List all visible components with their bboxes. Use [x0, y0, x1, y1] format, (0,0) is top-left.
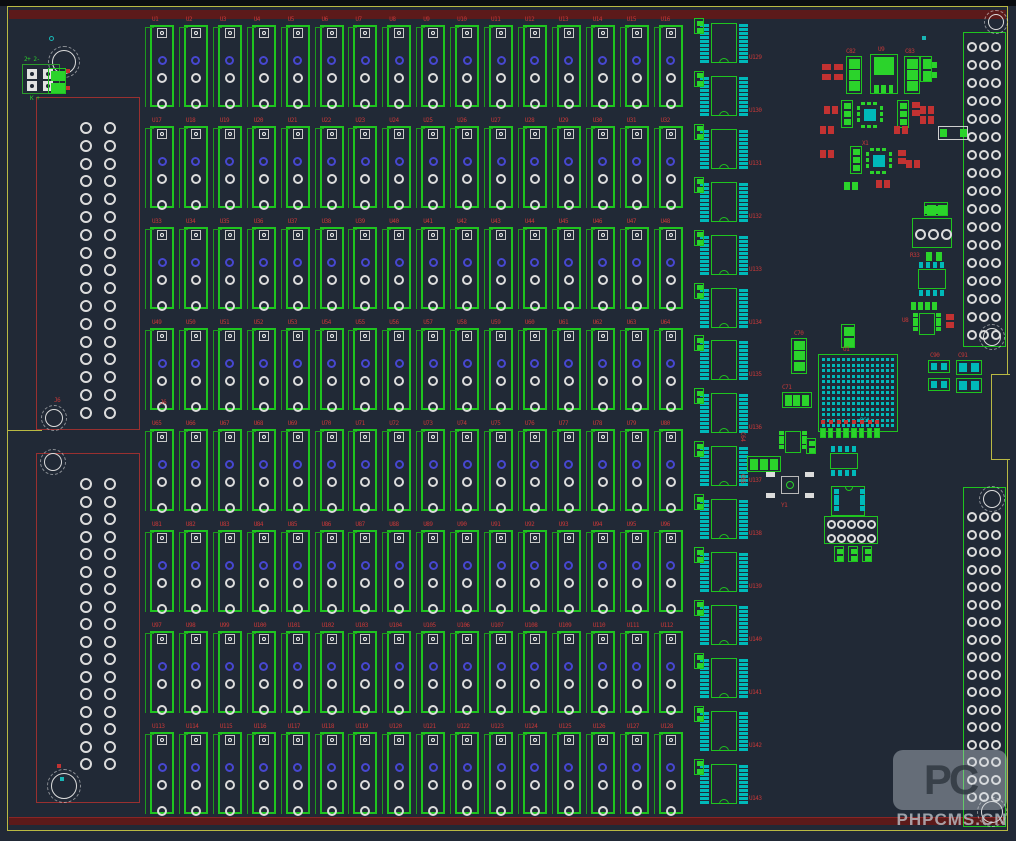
- relay-outline-2: [450, 330, 459, 410]
- pad-pin1: [191, 331, 201, 341]
- watermark: PC PHPCMS.CN: [891, 748, 1013, 836]
- relay-outline-2: [552, 532, 561, 612]
- ball-pad: [832, 386, 835, 389]
- relay-designator: U99: [220, 623, 229, 629]
- relay-designator: U94: [593, 522, 602, 528]
- dip8-socket[interactable]: [831, 486, 865, 516]
- capacitor-smd[interactable]: [956, 378, 982, 393]
- bypass-capacitor[interactable]: [694, 18, 704, 34]
- pad-hole: [397, 435, 401, 439]
- body: [918, 269, 946, 289]
- bypass-capacitor[interactable]: [694, 283, 704, 299]
- pin-pad: [913, 327, 918, 331]
- pad: [327, 376, 337, 386]
- ic-pin-pad: [700, 40, 709, 43]
- ic-pin-pad: [700, 317, 709, 320]
- ic-footprint[interactable]: [711, 129, 737, 169]
- ic-pin-pad: [739, 785, 748, 788]
- connector-pad: [991, 114, 1001, 124]
- connector-pad: [979, 150, 989, 160]
- ic-pin-pad: [739, 85, 748, 88]
- pad-pin1: [259, 533, 269, 543]
- ic-pin-pad: [739, 199, 748, 202]
- ic-pin-pad: [739, 626, 748, 629]
- capacitor-smd[interactable]: [925, 302, 937, 310]
- bypass-capacitor[interactable]: [694, 177, 704, 193]
- ball-pad: [857, 358, 860, 361]
- ic-pin-pad: [739, 679, 748, 682]
- capacitor-smd[interactable]: [48, 68, 66, 94]
- relay-outline-2: [315, 128, 324, 208]
- cap-pad: [697, 557, 703, 562]
- pad-signal: [598, 763, 607, 772]
- ic-pin-pad: [700, 622, 709, 625]
- pad-pin1: [191, 432, 201, 442]
- pad: [914, 160, 920, 168]
- pad-signal: [225, 763, 234, 772]
- ic-footprint[interactable]: [711, 605, 737, 645]
- capacitor-polarized[interactable]: [846, 56, 862, 94]
- relay-designator: U42: [457, 219, 466, 225]
- pad: [822, 64, 831, 70]
- cap-segment: [793, 395, 800, 406]
- pad-signal: [429, 56, 438, 65]
- relay-designator: U100: [254, 623, 266, 629]
- pad: [632, 402, 642, 412]
- resistor-smd[interactable]: [822, 64, 831, 80]
- capacitor-smd[interactable]: [920, 56, 932, 82]
- relay-designator: U118: [322, 724, 334, 730]
- relay-outline-2: [586, 27, 595, 107]
- bypass-capacitor[interactable]: [694, 494, 704, 510]
- ic-pin-pad: [700, 532, 709, 535]
- capacitor-polarized[interactable]: [850, 146, 862, 174]
- pad: [259, 402, 269, 412]
- capacitor-smd[interactable]: [806, 438, 816, 454]
- capacitor-polarized[interactable]: [841, 100, 853, 128]
- relay-outline-2: [552, 633, 561, 713]
- relay-designator: U11: [491, 17, 500, 23]
- ball-pad: [822, 391, 825, 394]
- ball-pad: [827, 386, 830, 389]
- pad: [496, 806, 506, 816]
- terminal-block[interactable]: [912, 218, 952, 248]
- pad-signal: [361, 662, 370, 671]
- pad-hole: [499, 31, 503, 35]
- pad: [598, 806, 608, 816]
- pad-pin1: [496, 735, 506, 745]
- fuse-component[interactable]: [938, 126, 968, 140]
- soic8-chip[interactable]: [779, 430, 807, 454]
- relay-designator: U44: [525, 219, 534, 225]
- ic-pin-pad: [739, 659, 748, 662]
- bypass-capacitor[interactable]: [694, 759, 704, 775]
- ball-pad: [842, 386, 845, 389]
- ball-pad: [837, 375, 840, 378]
- pad-pin1: [327, 331, 337, 341]
- ball-pad: [837, 369, 840, 372]
- pad: [157, 376, 167, 386]
- ic-pin-pad: [739, 687, 748, 690]
- ic-pin-pad: [700, 113, 709, 116]
- pad-pin1: [598, 533, 608, 543]
- ball-pad: [861, 402, 864, 405]
- cap-segment: [853, 157, 860, 164]
- resistor-smd[interactable]: [820, 150, 834, 158]
- ball-pad: [886, 369, 889, 372]
- pad: [971, 363, 979, 372]
- resistor-smd[interactable]: [920, 116, 934, 124]
- pad-signal: [395, 258, 404, 267]
- connector-pad: [104, 158, 116, 170]
- ic-pin-pad: [739, 553, 748, 556]
- relay-designator: U1: [152, 17, 158, 23]
- capacitor-smd[interactable]: [841, 324, 855, 348]
- pad-signal: [666, 359, 675, 368]
- ic-footprint[interactable]: [711, 499, 737, 539]
- pad-signal: [463, 561, 472, 570]
- ball-pad: [857, 375, 860, 378]
- notch: [845, 487, 853, 491]
- header-8pin[interactable]: [820, 420, 882, 440]
- pad: [225, 301, 235, 311]
- pad: [911, 302, 916, 310]
- ic-pin-pad: [739, 48, 748, 51]
- cap-segment: [900, 111, 907, 118]
- ic-pin-pad: [739, 89, 748, 92]
- relay-designator: U68: [254, 421, 263, 427]
- ic-pin-pad: [700, 675, 709, 678]
- pad-signal: [666, 763, 675, 772]
- pad: [936, 252, 942, 261]
- ic-pin-pad: [700, 211, 709, 214]
- pad-hole: [635, 637, 639, 641]
- pad-hole: [635, 31, 639, 35]
- capacitor-polarized[interactable]: [782, 392, 812, 408]
- relay-designator: U34: [186, 219, 195, 225]
- pin-pad: [820, 428, 826, 438]
- pad: [191, 301, 201, 311]
- pad-pin1: [666, 533, 676, 543]
- pad: [946, 314, 954, 320]
- relay-outline-2: [620, 330, 629, 410]
- ic-footprint[interactable]: [711, 23, 737, 63]
- connector-pad: [979, 204, 989, 214]
- pad: [564, 806, 574, 816]
- pad: [293, 477, 303, 487]
- capacitor-smd[interactable]: [834, 546, 844, 562]
- connector-pad: [104, 300, 116, 312]
- relay-outline-2: [179, 532, 188, 612]
- bypass-capacitor[interactable]: [694, 706, 704, 722]
- pad-signal: [293, 258, 302, 267]
- qfp-chip[interactable]: [857, 102, 883, 128]
- ball-pad: [866, 391, 869, 394]
- connector-pad: [991, 186, 1001, 196]
- pad-signal: [293, 662, 302, 671]
- pin: [857, 118, 860, 122]
- ic-footprint[interactable]: [711, 235, 737, 275]
- ic-designator: U142: [749, 743, 761, 749]
- ic-footprint[interactable]: [711, 658, 737, 698]
- pad-pin1: [564, 432, 574, 442]
- pad-hole: [601, 536, 605, 540]
- resistor-smd[interactable]: [912, 102, 920, 116]
- pad-hole: [567, 435, 571, 439]
- header-2x5[interactable]: [824, 516, 878, 544]
- pad-hole: [431, 536, 435, 540]
- pad-pin1: [462, 230, 472, 240]
- ic-footprint[interactable]: [711, 340, 737, 380]
- bypass-capacitor[interactable]: [694, 124, 704, 140]
- pad-pin1: [157, 28, 167, 38]
- relay-designator: U77: [559, 421, 568, 427]
- relay-outline-2: [416, 229, 425, 309]
- bypass-capacitor[interactable]: [694, 335, 704, 351]
- capacitor-smd[interactable]: [928, 378, 950, 391]
- pad-pin1: [632, 28, 642, 38]
- capacitor-smd[interactable]: [911, 302, 923, 310]
- pad: [327, 503, 337, 513]
- pad: [844, 327, 854, 336]
- silk-label: Y1: [781, 503, 787, 509]
- pad: [191, 174, 201, 184]
- pad: [530, 301, 540, 311]
- capacitor-smd[interactable]: [956, 360, 982, 375]
- connector-pad: [991, 78, 1001, 88]
- pad: [293, 705, 303, 715]
- ball-pad: [847, 380, 850, 383]
- pad-pin1: [259, 735, 269, 745]
- pad-hole: [296, 233, 300, 237]
- capacitor-polarized[interactable]: [904, 56, 920, 94]
- body: [785, 431, 801, 453]
- pad-signal: [632, 157, 641, 166]
- ic-pin-pad: [700, 577, 709, 580]
- pad-hole: [465, 132, 469, 136]
- resistor-smd[interactable]: [946, 314, 954, 328]
- header-pad: [837, 534, 846, 543]
- pad-pin1: [496, 634, 506, 644]
- pad-signal: [598, 662, 607, 671]
- cap-pad: [697, 240, 703, 245]
- pad-signal: [497, 359, 506, 368]
- resistor-smd[interactable]: [920, 106, 934, 114]
- ic-pin-pad: [739, 101, 748, 104]
- ic-pin-pad: [700, 101, 709, 104]
- connector-pad: [967, 150, 977, 160]
- soic8-chip[interactable]: [826, 446, 862, 476]
- relay-designator: U35: [220, 219, 229, 225]
- ball-pad: [852, 413, 855, 416]
- relay-outline-2: [281, 431, 290, 511]
- bypass-capacitor[interactable]: [694, 388, 704, 404]
- pad: [191, 477, 201, 487]
- pad-pin1: [191, 129, 201, 139]
- relay-outline-2: [315, 330, 324, 410]
- ball-pad: [866, 402, 869, 405]
- mounting-hole-courtyard: [40, 449, 66, 475]
- pad: [832, 106, 838, 114]
- ic-pin-pad: [700, 146, 709, 149]
- pin-pad: [881, 85, 886, 93]
- capacitor-smd[interactable]: [928, 360, 950, 373]
- resistor-smd[interactable]: [824, 106, 838, 114]
- relay-designator: U121: [423, 724, 435, 730]
- ic-footprint[interactable]: [711, 764, 737, 804]
- ic-footprint[interactable]: [711, 182, 737, 222]
- pad-hole: [499, 132, 503, 136]
- pad: [191, 275, 201, 285]
- ball-pad: [857, 386, 860, 389]
- bypass-capacitor[interactable]: [694, 653, 704, 669]
- ball-pad: [861, 369, 864, 372]
- pad-pin1: [564, 533, 574, 543]
- pad-signal: [327, 56, 336, 65]
- soic8-chip[interactable]: [913, 312, 941, 336]
- resistor-smd[interactable]: [834, 64, 843, 80]
- connector-pad: [979, 617, 989, 627]
- pad-pin1: [598, 129, 608, 139]
- ball-pad: [866, 364, 869, 367]
- pad: [666, 73, 676, 83]
- bypass-capacitor[interactable]: [694, 71, 704, 87]
- pad: [632, 705, 642, 715]
- ic-footprint[interactable]: [711, 393, 737, 433]
- ic-pin-pad: [739, 418, 748, 421]
- pad-pin1: [428, 28, 438, 38]
- ic-pin-pad: [739, 297, 748, 300]
- pad-signal: [632, 258, 641, 267]
- pad: [496, 705, 506, 715]
- relay-outline-2: [484, 431, 493, 511]
- pad: [632, 275, 642, 285]
- ic-pin-pad: [739, 589, 748, 592]
- pad-hole: [228, 738, 232, 742]
- capacitor-smd[interactable]: [862, 546, 872, 562]
- resistor-smd[interactable]: [906, 160, 920, 168]
- ic-pin-pad: [739, 219, 748, 222]
- relay-designator: U38: [322, 219, 331, 225]
- pad: [598, 200, 608, 210]
- voltage-regulator[interactable]: [870, 54, 898, 94]
- relay-outline-2: [145, 330, 154, 410]
- pad: [496, 780, 506, 790]
- ball-pad: [876, 364, 879, 367]
- resistor-smd[interactable]: [820, 126, 834, 134]
- pad: [259, 73, 269, 83]
- ball-pad: [832, 369, 835, 372]
- soic8-chip[interactable]: [914, 262, 950, 296]
- ic-pin-pad: [739, 353, 748, 356]
- pad: [225, 503, 235, 513]
- ball-pad: [876, 380, 879, 383]
- pad: [225, 780, 235, 790]
- pad: [259, 503, 269, 513]
- ic-footprint[interactable]: [711, 76, 737, 116]
- pad: [632, 806, 642, 816]
- pad-pin1: [496, 533, 506, 543]
- pad-signal: [225, 561, 234, 570]
- ic-pin-pad: [700, 671, 709, 674]
- connector-pad: [967, 168, 977, 178]
- ic-pin-pad: [700, 219, 709, 222]
- ic-footprint[interactable]: [711, 446, 737, 486]
- ic-pin-pad: [700, 203, 709, 206]
- relay-designator: U8: [389, 17, 395, 23]
- pad: [932, 302, 937, 310]
- ball-pad: [871, 364, 874, 367]
- connector-pad: [967, 276, 977, 286]
- capacitor-smd[interactable]: [844, 182, 858, 190]
- resistor-smd[interactable]: [876, 180, 890, 188]
- pad-signal: [564, 662, 573, 671]
- pad: [259, 477, 269, 487]
- capacitor-smd[interactable]: [848, 546, 858, 562]
- ic-footprint[interactable]: [711, 552, 737, 592]
- connector-pad: [979, 222, 989, 232]
- bypass-capacitor[interactable]: [694, 547, 704, 563]
- pad-pin1: [293, 28, 303, 38]
- pad: [259, 780, 269, 790]
- relay-outline-2: [145, 532, 154, 612]
- pad-hole: [330, 132, 334, 136]
- ic-pin-pad: [739, 740, 748, 743]
- cap-segment: [760, 459, 769, 470]
- ic-footprint[interactable]: [711, 288, 737, 328]
- pcb-canvas[interactable]: U1U2U3U4U5U6U7U8U9U10U11U12U13U14U15U16U…: [0, 0, 1016, 841]
- connector-pad: [967, 600, 977, 610]
- relay-designator: U127: [627, 724, 639, 730]
- ic-notch: [719, 587, 729, 592]
- crystal-oscillator[interactable]: [766, 470, 814, 500]
- relay-designator: U85: [288, 522, 297, 528]
- bypass-capacitor[interactable]: [694, 230, 704, 246]
- pad: [851, 556, 857, 561]
- resistor-smd[interactable]: [894, 126, 908, 134]
- ic-pin-pad: [739, 520, 748, 523]
- relay-outline-2: [213, 229, 222, 309]
- capacitor-polarized[interactable]: [791, 338, 807, 374]
- ball-pad: [866, 386, 869, 389]
- relay-outline-2: [145, 27, 154, 107]
- pad-pin1: [632, 129, 642, 139]
- terminal-pad: [928, 229, 939, 240]
- connector-pad: [80, 758, 92, 770]
- ic-pin-pad: [700, 581, 709, 584]
- pad: [327, 301, 337, 311]
- bypass-capacitor[interactable]: [694, 441, 704, 457]
- pad-signal: [158, 56, 167, 65]
- pad: [225, 402, 235, 412]
- pad-pin1: [496, 432, 506, 442]
- connector-pad: [104, 122, 116, 134]
- relay-outline-2: [382, 431, 391, 511]
- ic-pin-pad: [700, 748, 709, 751]
- capacitor-smd[interactable]: [926, 252, 942, 261]
- resistor-smd[interactable]: [898, 150, 906, 164]
- ic-footprint[interactable]: [711, 711, 737, 751]
- bypass-capacitor[interactable]: [694, 600, 704, 616]
- ball-pad: [827, 375, 830, 378]
- header-pad: [867, 520, 876, 529]
- ic-pin-pad: [700, 199, 709, 202]
- relay-outline-2: [315, 431, 324, 511]
- pad-pin1: [462, 28, 472, 38]
- qfp-chip[interactable]: [866, 148, 892, 174]
- capacitor-polarized[interactable]: [897, 100, 909, 128]
- pad-signal: [463, 763, 472, 772]
